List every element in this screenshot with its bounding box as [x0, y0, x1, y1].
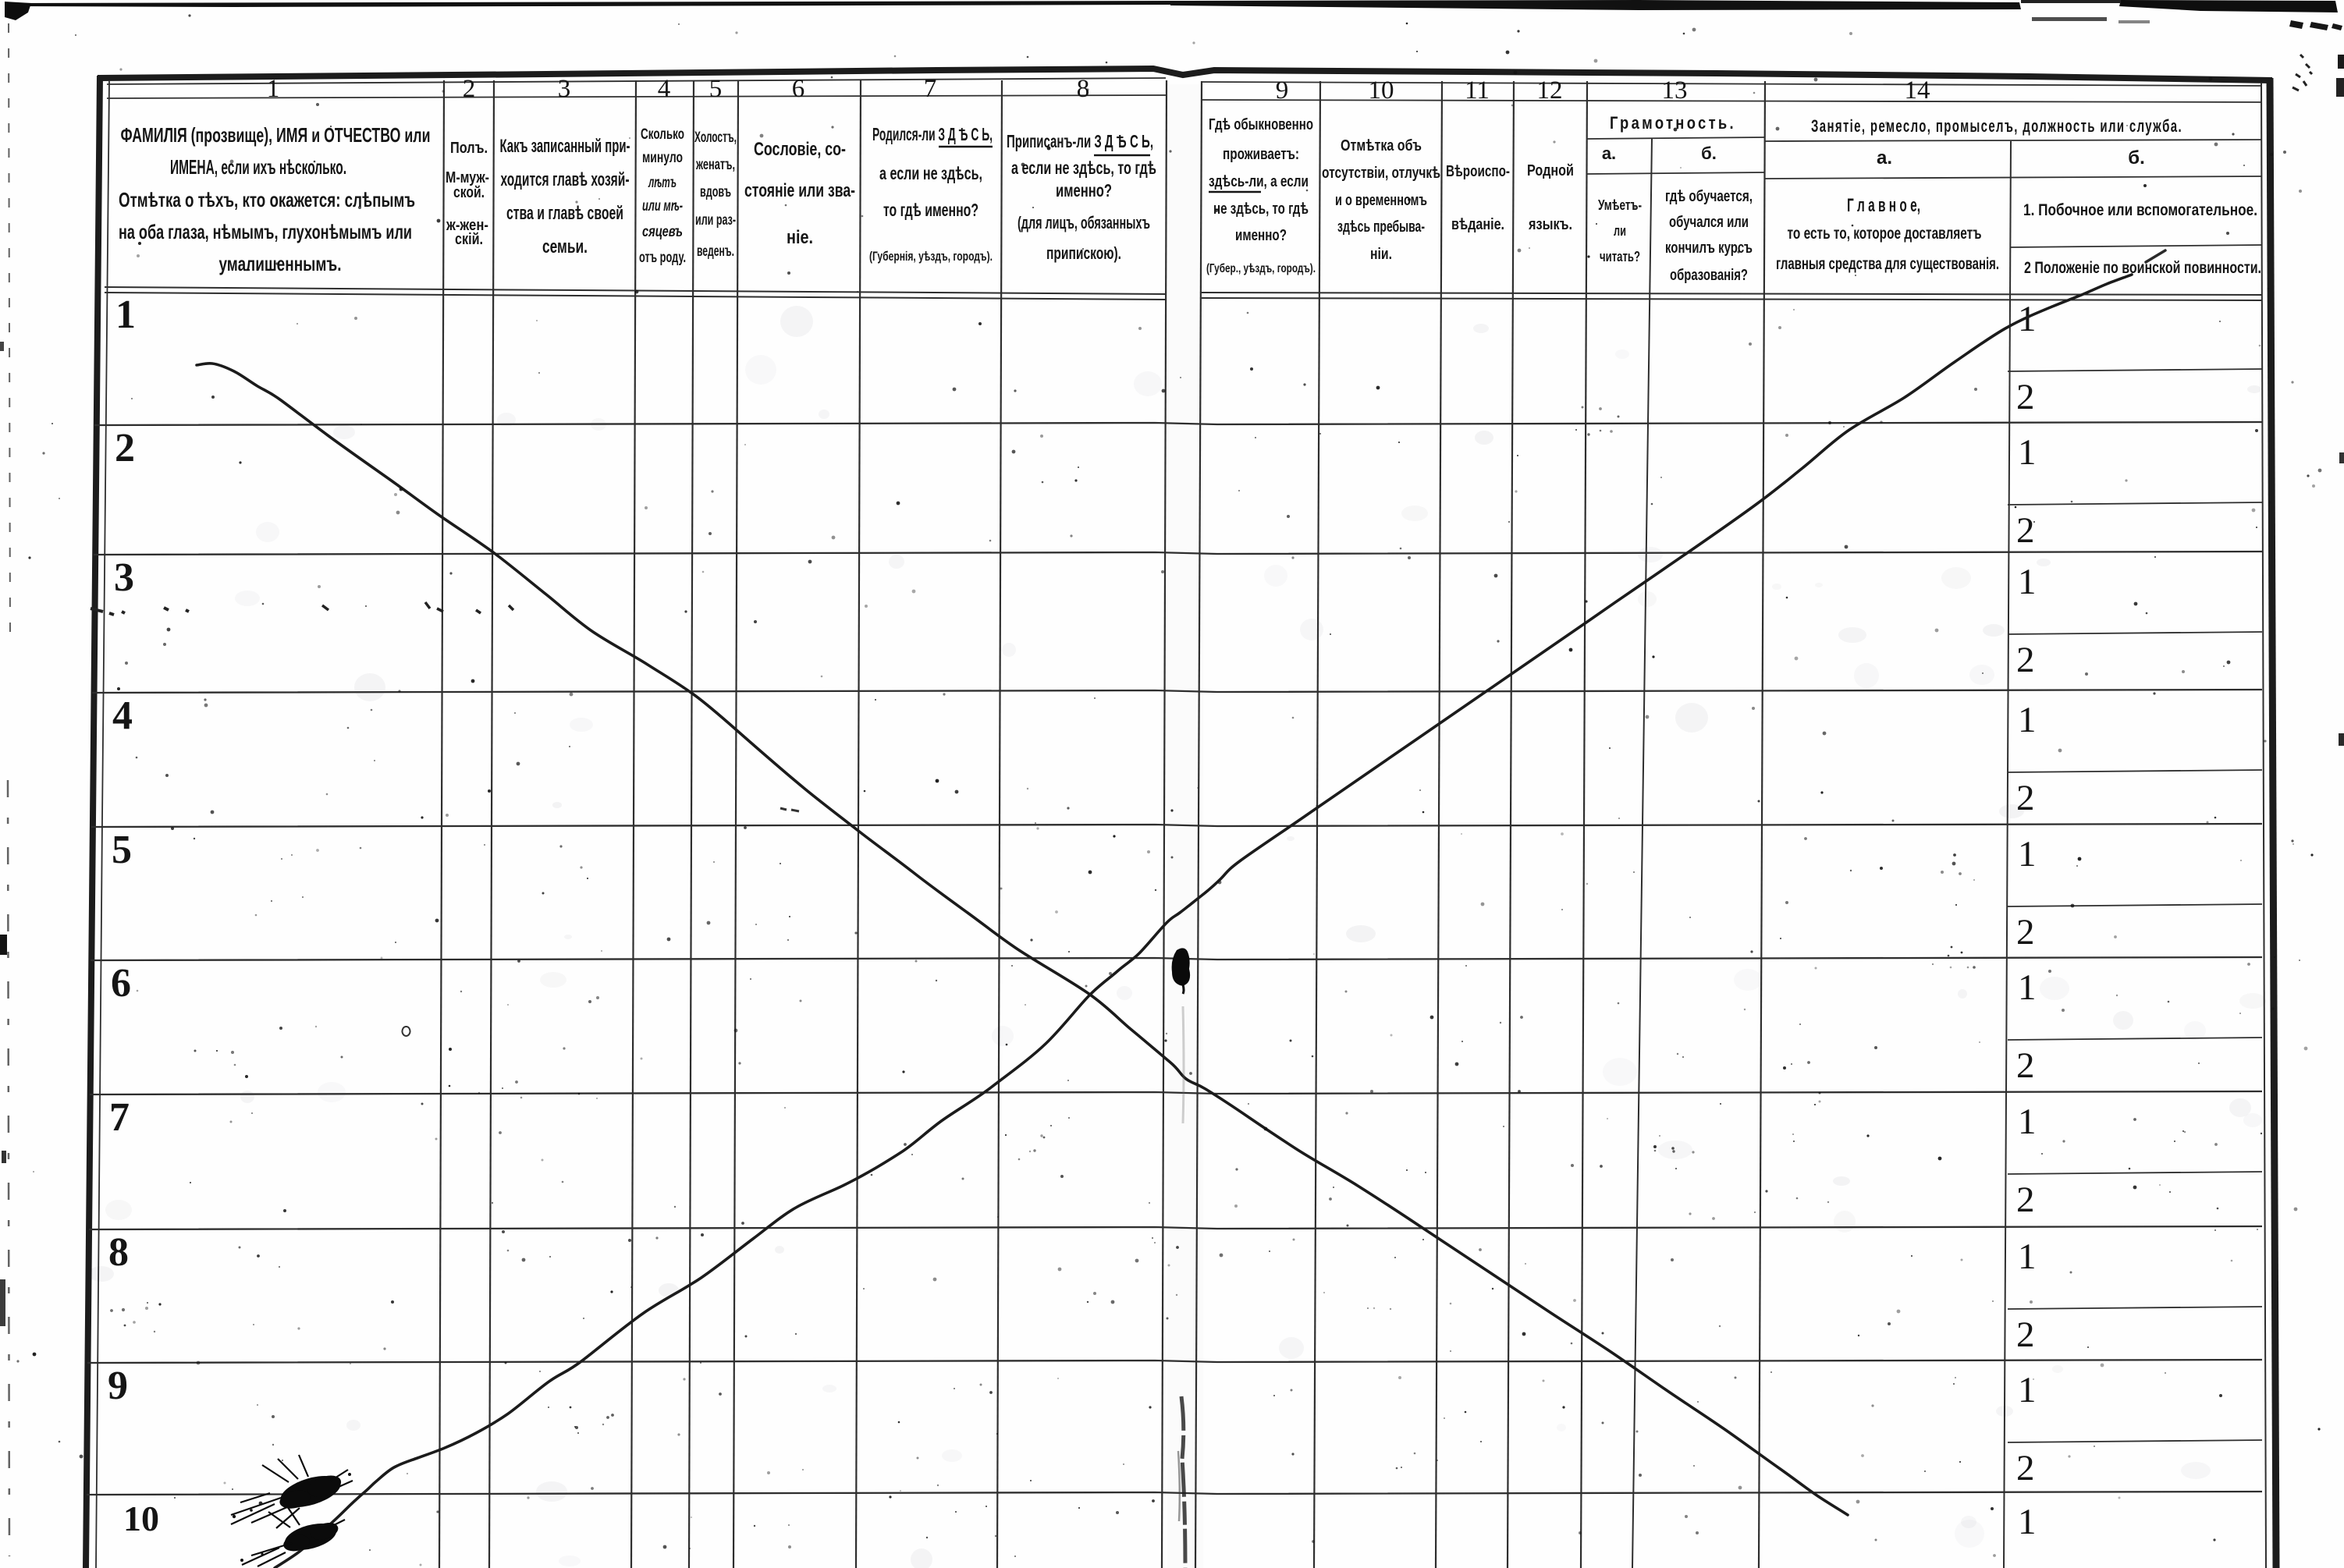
svg-text:1: 1	[2018, 1370, 2037, 1410]
svg-text:4: 4	[658, 75, 671, 103]
svg-text:1: 1	[2018, 700, 2037, 740]
svg-text:3: 3	[114, 555, 134, 600]
svg-text:не здѣсь, то гдѣ: не здѣсь, то гдѣ	[1213, 200, 1309, 218]
svg-text:ства и главѣ своей: ства и главѣ своей	[506, 203, 623, 224]
svg-text:вѣданіе.: вѣданіе.	[1451, 216, 1504, 233]
svg-text:вдовъ: вдовъ	[700, 184, 731, 200]
svg-text:1: 1	[115, 293, 136, 337]
svg-text:скій.: скій.	[455, 231, 483, 248]
svg-text:проживаетъ:: проживаетъ:	[1223, 146, 1299, 163]
svg-text:2 Положеніе по воинской пови: 2 Положеніе по воинской повинности.	[2024, 259, 2261, 277]
svg-text:женатъ,: женатъ,	[695, 157, 735, 173]
svg-text:умалишеннымъ.: умалишеннымъ.	[219, 252, 342, 275]
svg-text:Холостъ,: Холостъ,	[694, 129, 737, 146]
svg-text:6: 6	[792, 75, 805, 103]
svg-text:Приписанъ-ли З Д Ѣ С Ь,: Приписанъ-ли З Д Ѣ С Ь,	[1007, 131, 1153, 151]
svg-text:Родной: Родной	[1527, 162, 1574, 179]
svg-text:сяцевъ: сяцевъ	[642, 224, 683, 240]
svg-text:лѣтъ: лѣтъ	[648, 175, 677, 191]
svg-text:13: 13	[1662, 76, 1688, 105]
svg-text:Сколько: Сколько	[641, 126, 684, 143]
svg-text:стояніе или зва-: стояніе или зва-	[744, 180, 855, 201]
svg-text:4: 4	[112, 694, 133, 738]
svg-text:Умѣетъ-: Умѣетъ-	[1598, 197, 1642, 213]
svg-text:гдѣ обучается,: гдѣ обучается,	[1665, 188, 1753, 205]
svg-text:ИМЕНА, если ихъ нѣсколько.: ИМЕНА, если ихъ нѣсколько.	[170, 155, 346, 179]
svg-text:Сословіе, со-: Сословіе, со-	[754, 139, 846, 160]
svg-text:1: 1	[2018, 1236, 2037, 1277]
svg-text:12: 12	[1537, 76, 1563, 105]
svg-text:или мѣ-: или мѣ-	[642, 198, 683, 215]
svg-text:10: 10	[123, 1499, 159, 1538]
svg-text:7: 7	[924, 75, 937, 103]
svg-text:или раз-: или раз-	[695, 212, 736, 229]
svg-text:Г л а в н о е,: Г л а в н о е,	[1847, 195, 1920, 216]
svg-text:2: 2	[2016, 377, 2035, 417]
svg-text:8: 8	[108, 1230, 129, 1275]
svg-text:1: 1	[2018, 1502, 2037, 1542]
svg-text:1: 1	[267, 75, 280, 103]
svg-text:2: 2	[2016, 912, 2035, 953]
svg-text:отъ роду.: отъ роду.	[639, 250, 686, 266]
svg-text:ніи.: ніи.	[1370, 246, 1392, 263]
svg-text:2: 2	[2016, 1314, 2035, 1355]
svg-text:6: 6	[111, 961, 131, 1006]
svg-text:9: 9	[1276, 76, 1289, 105]
svg-text:а.: а.	[1877, 147, 1892, 169]
svg-text:1: 1	[2018, 432, 2037, 473]
svg-text:2: 2	[2016, 510, 2035, 551]
svg-text:2: 2	[2016, 1045, 2035, 1086]
svg-text:кончилъ курсъ: кончилъ курсъ	[1665, 239, 1753, 257]
svg-text:3: 3	[558, 75, 571, 103]
svg-text:здѣсь пребыва-: здѣсь пребыва-	[1337, 218, 1425, 236]
svg-text:главныя средства для существов: главныя средства для существованія.	[1776, 255, 1999, 273]
svg-text:отсутствіи, отлучкѣ: отсутствіи, отлучкѣ	[1322, 165, 1440, 182]
svg-text:2: 2	[2016, 1448, 2035, 1488]
svg-text:5: 5	[112, 828, 132, 872]
svg-text:именно?: именно?	[1056, 180, 1112, 200]
svg-text:а если не здѣсь, то гдѣ: а если не здѣсь, то гдѣ	[1011, 158, 1156, 178]
svg-text:Отмѣтка объ: Отмѣтка объ	[1341, 137, 1422, 154]
svg-text:ли: ли	[1614, 223, 1626, 239]
svg-text:(Губер., уѣздъ, городъ).: (Губер., уѣздъ, городъ).	[1206, 262, 1316, 275]
svg-text:1: 1	[2018, 834, 2037, 874]
svg-text:то гдѣ именно?: то гдѣ именно?	[883, 200, 978, 220]
svg-text:б.: б.	[2128, 147, 2145, 169]
svg-text:языкъ.: языкъ.	[1528, 216, 1572, 233]
svg-text:а.: а.	[1602, 144, 1616, 163]
svg-text:Вѣроиспо-: Вѣроиспо-	[1446, 163, 1510, 180]
svg-text:ской.: ской.	[453, 184, 485, 201]
svg-text:(Губернія, уѣздъ, городъ).: (Губернія, уѣздъ, городъ).	[869, 249, 993, 264]
svg-text:на оба глаза, нѣмымъ, глухонѣм: на оба глаза, нѣмымъ, глухонѣмымъ или	[119, 220, 412, 243]
svg-text:обучался или: обучался или	[1669, 214, 1749, 231]
svg-text:1. Побочное или вспомогател: 1. Побочное или вспомогательное.	[2023, 201, 2257, 219]
svg-text:11: 11	[1465, 76, 1490, 105]
svg-text:Какъ записанный при-: Какъ записанный при-	[500, 136, 630, 157]
svg-text:Родился-ли З Д Ѣ С Ь,: Родился-ли З Д Ѣ С Ь,	[872, 124, 993, 144]
svg-text:10: 10	[1369, 76, 1394, 105]
svg-text:образованія?: образованія?	[1670, 267, 1748, 284]
svg-text:и о временномъ: и о временномъ	[1335, 192, 1427, 209]
svg-text:Полъ.: Полъ.	[450, 140, 488, 157]
svg-text:здѣсь-ли, а если: здѣсь-ли, а если	[1209, 173, 1309, 190]
svg-text:1: 1	[2018, 562, 2037, 602]
svg-text:Гдѣ обыкновенно: Гдѣ обыкновенно	[1209, 116, 1313, 133]
svg-text:ходится главѣ хозяй-: ходится главѣ хозяй-	[501, 169, 630, 190]
svg-text:2: 2	[2016, 1180, 2035, 1220]
svg-text:1: 1	[2018, 1102, 2037, 1142]
svg-text:именно?: именно?	[1235, 227, 1287, 244]
svg-text:2: 2	[115, 426, 135, 470]
svg-text:5: 5	[709, 75, 723, 103]
svg-text:припискою).: припискою).	[1046, 243, 1121, 263]
svg-text:б.: б.	[1701, 144, 1717, 163]
svg-text:семьи.: семьи.	[542, 236, 588, 257]
svg-text:Отмѣтка о тѣхъ, кто окажется:: Отмѣтка о тѣхъ, кто окажется: слѣпымъ	[119, 188, 415, 211]
svg-text:(для лицъ, обязанныхъ: (для лицъ, обязанныхъ	[1018, 213, 1150, 232]
svg-text:то есть то, которое доставляет: то есть то, которое доставляетъ	[1788, 225, 1982, 243]
svg-text:1: 1	[2018, 967, 2037, 1008]
svg-text:14: 14	[1905, 76, 1930, 105]
svg-text:ніе.: ніе.	[787, 227, 813, 248]
svg-text:Грамотность.: Грамотность.	[1610, 113, 1736, 133]
svg-text:7: 7	[109, 1095, 130, 1140]
svg-text:читать?: читать?	[1600, 249, 1640, 264]
svg-text:а если не здѣсь,: а если не здѣсь,	[879, 163, 982, 183]
svg-text:минуло: минуло	[642, 150, 683, 166]
svg-text:ФАМИЛІЯ (прозвище), ИМЯ и ОТЧЕ: ФАМИЛІЯ (прозвище), ИМЯ и ОТЧЕСТВО или	[121, 123, 431, 147]
svg-text:9: 9	[108, 1364, 128, 1408]
svg-text:2: 2	[2016, 640, 2035, 680]
svg-text:веденъ.: веденъ.	[697, 243, 734, 260]
svg-text:2: 2	[463, 75, 476, 103]
